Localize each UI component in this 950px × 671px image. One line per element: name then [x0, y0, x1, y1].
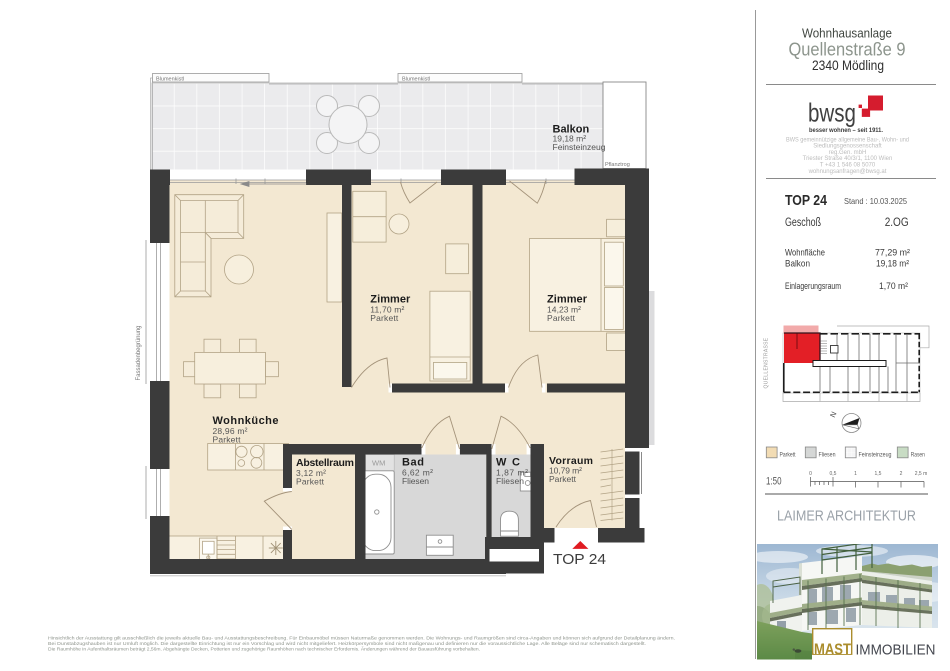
svg-text:Parkett: Parkett [370, 313, 399, 323]
svg-text:2340 Mödling: 2340 Mödling [812, 57, 884, 73]
svg-text:bwsg: bwsg [808, 98, 856, 128]
svg-text:Fassadenbegrünung: Fassadenbegrünung [136, 325, 142, 380]
svg-text:2.OG: 2.OG [885, 215, 909, 229]
svg-text:WM: WM [372, 459, 385, 468]
svg-text:Feinsteinzeug: Feinsteinzeug [553, 142, 606, 152]
svg-text:2: 2 [900, 471, 903, 477]
svg-text:besser wohnen – seit 1911.: besser wohnen – seit 1911. [809, 127, 883, 134]
svg-text:Die Raumhöhe in Aufenthaltsräu: Die Raumhöhe in Aufenthaltsräumen beträg… [48, 646, 480, 653]
svg-text:1,70 m²: 1,70 m² [879, 281, 908, 292]
svg-text:Parkett: Parkett [780, 453, 796, 459]
svg-text:19,18 m²: 19,18 m² [876, 258, 909, 269]
svg-text:Bei Dunstabzugshauben ist nur: Bei Dunstabzugshauben ist nur Umluft mög… [48, 641, 646, 647]
svg-text:Pflanztrog: Pflanztrog [605, 162, 630, 168]
svg-text:Blumenkistl: Blumenkistl [156, 77, 184, 83]
svg-text:TOP 24: TOP 24 [553, 552, 606, 568]
svg-text:Blumenkistl: Blumenkistl [402, 77, 430, 83]
svg-text:reg.Gen. mbH: reg.Gen. mbH [829, 150, 867, 156]
svg-text:MAST: MAST [814, 642, 851, 659]
svg-text:2,5 m: 2,5 m [915, 471, 928, 477]
svg-text:Geschoß: Geschoß [785, 217, 821, 229]
svg-text:IMMOBILIEN: IMMOBILIEN [856, 642, 936, 659]
svg-text:Fliesen: Fliesen [819, 453, 836, 459]
svg-text:QUELLENSTRASSE: QUELLENSTRASSE [764, 337, 770, 388]
svg-text:Siedlungsgenossenschaft: Siedlungsgenossenschaft [813, 144, 882, 150]
svg-text:N: N [828, 410, 838, 419]
svg-text:TOP 24: TOP 24 [785, 192, 828, 209]
svg-text:1:50: 1:50 [766, 476, 782, 488]
svg-text:LAIMER ARCHITEKTUR: LAIMER ARCHITEKTUR [777, 508, 916, 525]
svg-text:0: 0 [809, 471, 812, 477]
svg-text:wohnungsanfragen@bwsg.at: wohnungsanfragen@bwsg.at [808, 169, 887, 175]
svg-text:Stand : 10.03.2025: Stand : 10.03.2025 [844, 197, 908, 206]
svg-text:Fliesen: Fliesen [496, 476, 524, 486]
svg-text:T +43 1 546 08 5070: T +43 1 546 08 5070 [820, 163, 876, 169]
svg-text:Parkett: Parkett [213, 435, 242, 445]
svg-text:1: 1 [854, 471, 857, 477]
svg-text:Balkon: Balkon [785, 258, 810, 269]
svg-text:0,5: 0,5 [830, 471, 837, 477]
svg-text:Hinsichtlich der Ausstattung g: Hinsichtlich der Ausstattung gilt aussch… [48, 635, 675, 641]
svg-text:Parkett: Parkett [296, 477, 325, 487]
svg-text:Parkett: Parkett [547, 313, 576, 323]
svg-text:Einlagerungsraum: Einlagerungsraum [785, 281, 841, 292]
svg-text:Rasen: Rasen [911, 453, 925, 459]
svg-text:BWS gemeinnützige allgemeine B: BWS gemeinnützige allgemeine Bau-, Wohn-… [786, 137, 909, 143]
svg-text:Feinsteinzeug: Feinsteinzeug [859, 453, 892, 459]
svg-text:Fliesen: Fliesen [402, 476, 429, 486]
svg-text:Parkett: Parkett [549, 474, 577, 484]
svg-text:Triester Straße 40/3/1, 1100 W: Triester Straße 40/3/1, 1100 Wien [803, 156, 893, 162]
svg-text:77,29 m²: 77,29 m² [875, 248, 910, 259]
svg-text:1,5: 1,5 [875, 471, 882, 477]
svg-text:Wohnfläche: Wohnfläche [785, 248, 825, 259]
